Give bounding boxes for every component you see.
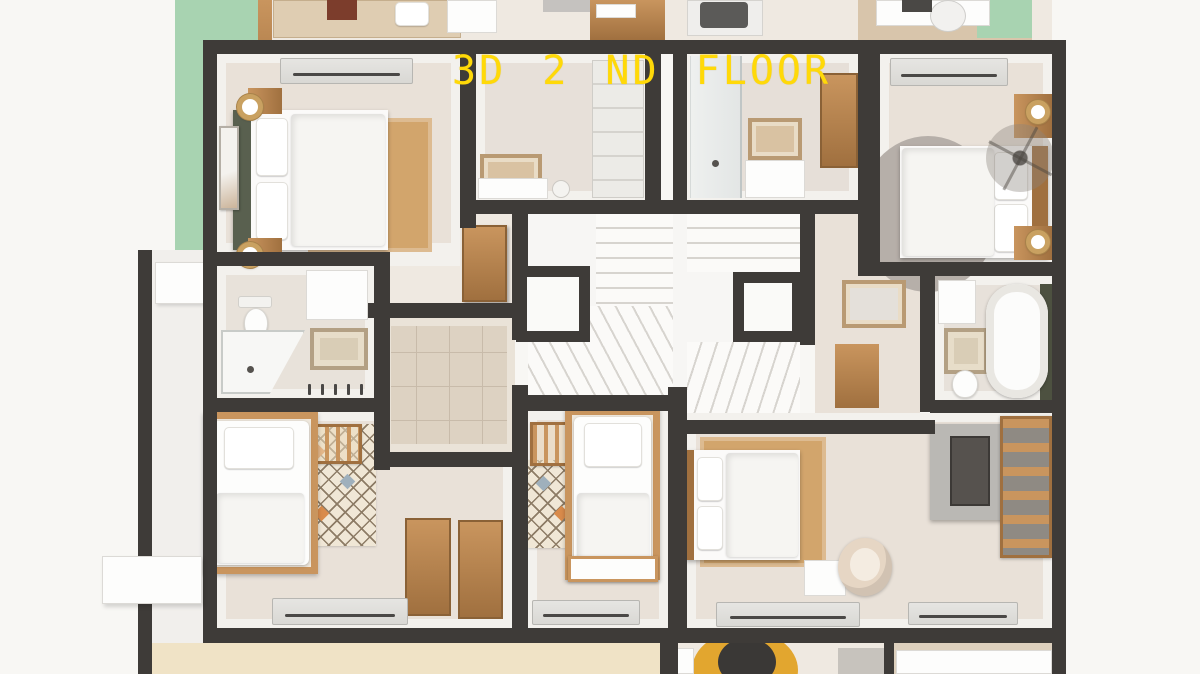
ac-unit-br-2: [908, 602, 1018, 625]
wardrobe-bl-1: [405, 518, 451, 616]
dresser-top-items: [596, 4, 636, 18]
staircase-2-winders: [687, 342, 800, 420]
desk-br2: [896, 650, 1052, 674]
ac-vent: [730, 616, 846, 619]
ac-vent: [901, 74, 996, 77]
laptop: [902, 0, 932, 12]
ac-unit-br-1: [716, 602, 860, 627]
pillow-br-1: [697, 457, 723, 501]
bench2-clothes: [700, 2, 748, 28]
wardrobe-bl-2: [458, 520, 503, 619]
armchair-br: [838, 538, 892, 596]
bed-br: [686, 450, 800, 560]
vanity-stool: [552, 180, 570, 198]
wall-right: [1052, 40, 1066, 674]
balcony-bench-white: [447, 0, 497, 33]
room-foyer: [383, 318, 515, 452]
lamp-tl-top: [237, 94, 263, 120]
ceiling-fan: [986, 124, 1054, 192]
wall-shelf-bc: [568, 556, 658, 582]
lamp-tr-top: [1026, 100, 1050, 124]
stairwell-void-2: [733, 272, 803, 342]
wall-left: [203, 40, 217, 643]
wall-bath-mr-bottom: [930, 400, 1066, 413]
duvet-bl: [216, 493, 304, 563]
daybed-balcony: [273, 0, 461, 38]
ac-unit-bl: [272, 598, 408, 625]
rug-accent: [340, 474, 356, 490]
wall-bc-br-divider: [668, 387, 687, 633]
bed-tl: [233, 110, 388, 250]
mirror-top-bath: [748, 118, 802, 160]
pillow-tl-1: [256, 118, 288, 176]
balcony-shelf-2: [102, 556, 202, 604]
rug-accent: [536, 476, 552, 492]
staircase-2-treads: [687, 214, 800, 272]
duvet-br: [726, 453, 798, 557]
tv-screen: [950, 436, 990, 506]
floor-plan-scene: 3D 2 ND FLOOR: [0, 0, 1200, 674]
stairwell-void-1: [516, 266, 590, 342]
ac-vent: [543, 614, 630, 617]
wall-tl-bottom: [203, 252, 390, 266]
pillow-br-2: [697, 506, 723, 550]
wall-outer-balcony: [138, 250, 152, 674]
lamp-tr-bottom: [1026, 230, 1050, 254]
wall-spine-lower: [512, 385, 528, 633]
shower-drain-ml: [247, 366, 254, 373]
wall-bath-top-right: [858, 40, 880, 276]
daybed-pillow: [395, 2, 429, 26]
door-threshold: [390, 252, 460, 266]
vanity-top-bath: [745, 160, 805, 198]
toilet-mr: [952, 370, 978, 398]
toilet-tank-ml: [238, 296, 272, 308]
bath-rug-ml: [310, 328, 368, 370]
pillow-bl: [224, 427, 294, 469]
top-desk-chair: [930, 0, 966, 32]
wall-stub-bottom-1: [660, 642, 678, 674]
ac-vent: [285, 614, 395, 617]
balcony-shelf-1: [155, 262, 205, 304]
hallway-cabinet: [835, 344, 879, 408]
shower-drain-top: [712, 160, 719, 167]
vanity-mr: [938, 280, 976, 324]
bed-bl: [203, 412, 318, 574]
wall-art-tl: [219, 126, 239, 210]
ac-unit-bc: [532, 600, 640, 625]
headboard-br: [686, 450, 694, 560]
wall-bath-ml-bottom: [203, 398, 390, 412]
vanity-table: [478, 178, 548, 199]
duvet-tr: [902, 148, 994, 256]
wall-foyer-top: [368, 303, 515, 318]
wall-foyer-bottom: [374, 452, 528, 467]
wall-br-top: [687, 420, 935, 434]
ac-unit-tl: [280, 58, 413, 84]
wardrobe-ladder-br: [1000, 416, 1052, 558]
wall-bath-mr-left: [920, 276, 935, 412]
armchair-seat: [850, 548, 880, 580]
bathtub: [986, 284, 1048, 398]
bed-bc: [565, 408, 660, 580]
daybed-blanket: [327, 0, 357, 20]
duvet-tl: [291, 114, 385, 246]
ac-unit-tr: [890, 58, 1008, 86]
towel-hooks: [308, 384, 363, 395]
bath-rug-mr: [944, 328, 988, 374]
ac-vent: [919, 615, 1008, 618]
planter-left-strip: [175, 112, 203, 252]
wall-stub-bottom-2: [884, 642, 894, 674]
vanity-ml: [306, 270, 368, 320]
floor-title: 3D 2 ND FLOOR: [452, 48, 831, 94]
pillow-tl-2: [256, 182, 288, 240]
ac-vent: [293, 73, 400, 76]
wall-foyer-left: [374, 266, 390, 470]
door-hall-open: [462, 225, 507, 302]
pillow-bc: [584, 423, 642, 467]
stair-connector: [673, 214, 687, 387]
duvet-bc: [577, 493, 649, 565]
wall-tr-bottom: [858, 262, 1066, 276]
wall-bottom: [203, 628, 1066, 643]
leaning-frame-hallway: [842, 280, 906, 328]
wall-stairs1-bottom: [522, 395, 673, 411]
